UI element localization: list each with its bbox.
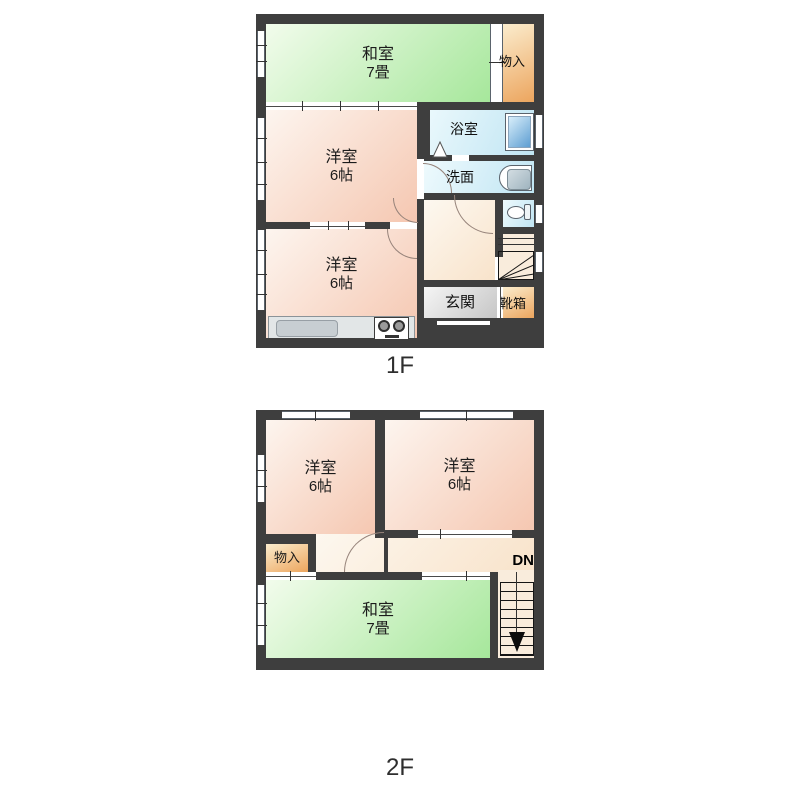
room-size: 6帖 xyxy=(330,276,353,293)
stairs-center-line xyxy=(516,572,517,632)
wall-segment xyxy=(490,572,498,658)
window xyxy=(420,411,513,419)
room-size: 6帖 xyxy=(330,168,353,185)
window xyxy=(535,115,543,148)
room-name: 洋室 xyxy=(325,256,357,276)
window xyxy=(535,205,543,223)
stair-tread xyxy=(498,244,534,245)
sliding-door xyxy=(310,222,365,229)
room-name: 和室 xyxy=(362,601,394,621)
room-yoshitsu-left-2f: 洋室 6帖 xyxy=(266,420,375,534)
room-name: 洋室 xyxy=(304,459,336,479)
room-washitsu-1f: 和室 7畳 xyxy=(266,24,490,102)
bath-door-icon xyxy=(432,141,448,158)
wall-segment xyxy=(365,222,390,229)
room-name: 和室 xyxy=(362,45,394,65)
sliding-door xyxy=(422,572,490,580)
wall-segment xyxy=(316,572,422,580)
room-genkan-label: 玄関 xyxy=(426,292,494,310)
wall-segment xyxy=(384,538,388,572)
stair-tread xyxy=(498,238,534,239)
window xyxy=(257,585,265,645)
room-size: 7畳 xyxy=(366,621,389,638)
room-size: 7畳 xyxy=(366,65,389,82)
wall-segment xyxy=(256,658,544,670)
room-yoshitsu-right-2f: 洋室 6帖 xyxy=(385,420,534,530)
entrance-door xyxy=(437,321,490,325)
room-size: 6帖 xyxy=(309,479,332,496)
toilet-tank-icon xyxy=(524,204,531,220)
room-monoire-1f-label: 物入 xyxy=(488,52,536,68)
wall-segment xyxy=(256,14,544,24)
room-bath-label: 浴室 xyxy=(432,120,496,138)
room-monoire-2f: 物入 xyxy=(266,544,308,572)
bathtub-icon xyxy=(505,113,534,151)
wall-segment xyxy=(417,110,430,155)
window xyxy=(257,31,265,77)
floorplan-page: 和室 7畳 物入 洋室 6帖 洋室 6帖 浴室 洗面 玄関 靴箱 xyxy=(0,0,800,800)
room-name: 物入 xyxy=(274,550,300,566)
toilet-icon xyxy=(507,206,525,219)
sink-icon xyxy=(499,165,532,191)
window xyxy=(257,230,265,310)
wall-segment xyxy=(424,280,534,287)
stove-icon xyxy=(374,317,409,340)
door-opening xyxy=(452,155,469,161)
window xyxy=(257,455,265,502)
wall-segment xyxy=(375,420,385,538)
floor-1-plan: 和室 7畳 物入 洋室 6帖 洋室 6帖 浴室 洗面 玄関 靴箱 xyxy=(256,14,544,348)
stairs-dn-label: DN xyxy=(494,552,534,570)
floor-1-caption: 1F xyxy=(256,352,544,380)
room-size: 6帖 xyxy=(448,477,471,494)
wall-segment xyxy=(308,544,316,572)
down-arrow-icon xyxy=(509,632,525,652)
wall-segment xyxy=(512,530,534,538)
wall-segment xyxy=(417,102,534,110)
room-name: 洋室 xyxy=(443,457,475,477)
room-name: 洋室 xyxy=(325,148,357,168)
wall-segment xyxy=(256,222,310,229)
wall-segment xyxy=(495,227,534,234)
floor-2-plan: 洋室 6帖 洋室 6帖 物入 和室 7畳 DN xyxy=(256,410,544,670)
window xyxy=(535,252,543,272)
sliding-door xyxy=(266,102,417,110)
wall-segment xyxy=(534,410,544,670)
floor-2-caption: 2F xyxy=(256,754,544,782)
sliding-door xyxy=(418,530,512,538)
winder-stairs-icon xyxy=(498,251,534,280)
wall-segment xyxy=(385,530,418,538)
wall-segment xyxy=(256,534,316,544)
window xyxy=(282,411,350,419)
room-kutsubako-label: 靴箱 xyxy=(490,295,536,310)
window xyxy=(257,118,265,200)
room-washitsu-2f: 和室 7畳 xyxy=(266,580,490,658)
door-opening xyxy=(390,222,417,229)
room-senmen-label: 洗面 xyxy=(428,168,492,186)
sliding-door xyxy=(266,572,316,580)
kitchen-sink-icon xyxy=(276,320,338,337)
wall-segment xyxy=(495,200,503,227)
